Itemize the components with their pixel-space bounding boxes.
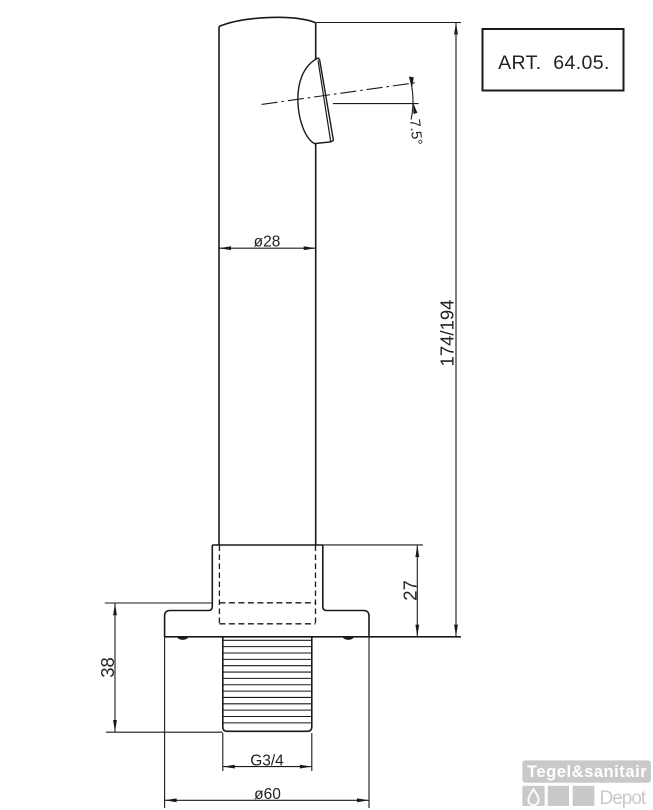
svg-text:27: 27: [399, 580, 420, 601]
svg-text:G3/4: G3/4: [250, 753, 284, 770]
svg-text:ART. 64.05.: ART. 64.05.: [498, 52, 610, 74]
svg-text:Depot: Depot: [600, 788, 647, 809]
svg-text:38: 38: [97, 657, 118, 678]
svg-text:ø28: ø28: [254, 233, 281, 250]
svg-text:7.5°: 7.5°: [406, 118, 425, 145]
svg-text:174/194: 174/194: [437, 300, 458, 367]
svg-text:Tegel&sanitair: Tegel&sanitair: [527, 763, 647, 781]
svg-text:ø60: ø60: [254, 786, 281, 803]
